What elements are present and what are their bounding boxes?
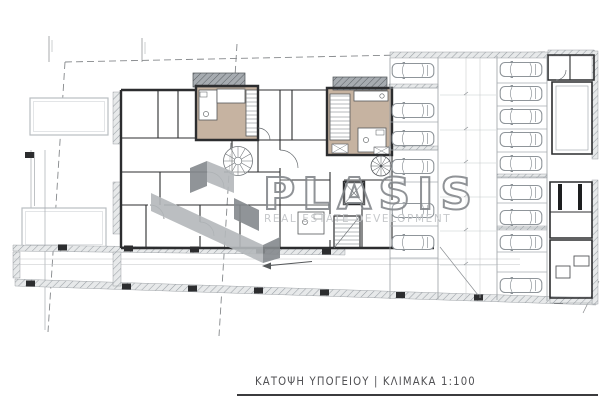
- bed: [217, 89, 245, 103]
- car-icon: [500, 61, 542, 78]
- car-icon: [500, 184, 542, 201]
- yard-planters: [13, 98, 108, 330]
- car-icon: [500, 85, 542, 102]
- ramp-arrow: [270, 262, 312, 266]
- car-icon: [500, 209, 542, 226]
- yard-planter-rect: [22, 208, 106, 248]
- survey-tick-lines: [49, 36, 142, 62]
- car-icon: [500, 131, 542, 148]
- car-icon: [500, 234, 542, 251]
- car-icon: [500, 277, 542, 294]
- car-icon: [392, 102, 434, 119]
- car-icon: [392, 130, 434, 147]
- watermark-tagline: REAL ESTATE DEVELOPMENT: [264, 213, 451, 225]
- logo-mark-dark-facet: [190, 161, 207, 193]
- floor-plan-canvas: PLASIS REAL ESTATE DEVELOPMENT: [0, 0, 600, 400]
- floor-plan-drawing: PLASIS REAL ESTATE DEVELOPMENT: [0, 0, 600, 400]
- drawing-title: ΚΑΤΟΨΗ ΥΠΟΓΕΙΟΥ | ΚΛΙΜΑΚΑ 1:100: [255, 374, 476, 388]
- driveway-and-retaining-walls: [13, 245, 596, 306]
- car-icon: [500, 108, 542, 125]
- ramp-edge-line: [440, 247, 478, 295]
- street-label-marks: [31, 150, 35, 212]
- title-block: ΚΑΤΟΨΗ ΥΠΟΓΕΙΟΥ | ΚΛΙΜΑΚΑ 1:100: [237, 370, 598, 396]
- car-icon: [392, 62, 434, 79]
- yard-planter-rect: [30, 98, 108, 135]
- car-icon: [392, 234, 434, 251]
- car-icon: [500, 155, 542, 172]
